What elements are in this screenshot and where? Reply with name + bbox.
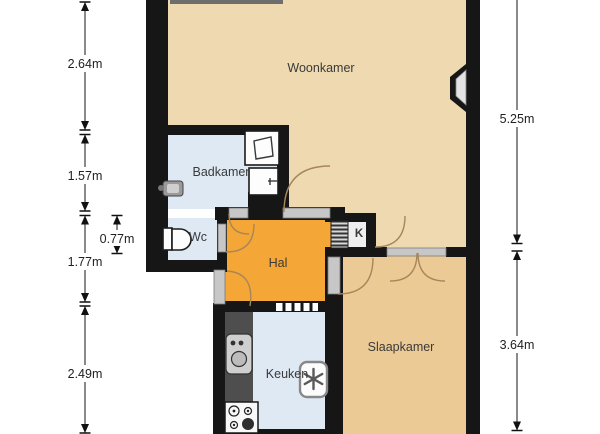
keuken-wall-vent xyxy=(276,303,318,311)
toilet-icon xyxy=(163,228,191,250)
badkamer-door-sill xyxy=(229,208,248,218)
dim-left-1-77: 1.77m xyxy=(68,255,103,269)
top-window-strip xyxy=(170,0,283,4)
kast-label: K xyxy=(355,228,364,240)
dimension-left-4: 2.49m xyxy=(62,306,108,433)
dimension-left-2: 1.57m xyxy=(62,135,108,212)
slaapkamer-door-sill xyxy=(328,257,340,294)
dim-right-5-25: 5.25m xyxy=(500,112,535,126)
keuken-label: Keuken xyxy=(266,367,308,381)
shower-icon xyxy=(245,131,279,165)
right-wall xyxy=(466,0,480,434)
keuken-left-wall xyxy=(213,308,225,434)
sink-icon xyxy=(249,168,278,195)
badkamer-label: Badkamer xyxy=(193,165,250,179)
dimension-left-0-77: 0.77m xyxy=(94,216,140,254)
dim-left-1-57: 1.57m xyxy=(68,169,103,183)
slaapkamer-label: Slaapkamer xyxy=(368,340,435,354)
woonkamer-door-sill xyxy=(283,208,330,218)
floor-plan-canvas: Woonkamer Badkamer Wc Hal K Keuken Slaap… xyxy=(0,0,600,434)
dimension-left-3: 1.77m xyxy=(62,216,108,303)
wc-label: Wc xyxy=(189,230,207,244)
dim-left-2-49: 2.49m xyxy=(68,367,103,381)
kitchen-sink-icon xyxy=(226,334,252,374)
woonkamer-slaapkamer-wall xyxy=(446,247,473,257)
dim-left-0-77: 0.77m xyxy=(100,232,135,246)
wc-door-sill xyxy=(218,224,226,252)
dimension-right-2: 3.64m xyxy=(494,251,540,431)
dim-right-3-64: 3.64m xyxy=(500,338,535,352)
hal-label: Hal xyxy=(269,256,288,270)
dimension-left-1: 2.64m xyxy=(62,2,108,130)
meter-cabinet-icon xyxy=(331,221,348,248)
front-door xyxy=(214,270,225,304)
stove-icon xyxy=(225,402,258,433)
dim-left-2-64: 2.64m xyxy=(68,57,103,71)
woonkamer-label: Woonkamer xyxy=(287,61,354,75)
dimension-right-1: 5.25m xyxy=(494,0,540,244)
